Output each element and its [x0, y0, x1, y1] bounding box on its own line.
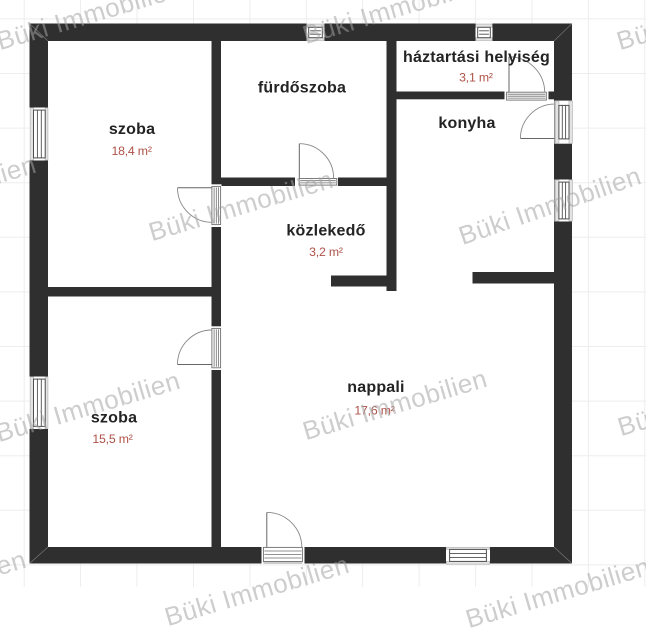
svg-text:18,4 m²: 18,4 m²	[111, 144, 151, 158]
svg-text:3,1 m²: 3,1 m²	[459, 71, 493, 85]
svg-text:szoba: szoba	[109, 121, 155, 138]
svg-text:15,5 m²: 15,5 m²	[92, 432, 132, 446]
svg-text:közlekedő: közlekedő	[286, 223, 365, 240]
svg-text:3,2 m²: 3,2 m²	[309, 245, 343, 259]
svg-text:konyha: konyha	[438, 115, 495, 132]
svg-text:háztartási helyiség: háztartási helyiség	[403, 49, 550, 66]
svg-text:fürdőszoba: fürdőszoba	[258, 79, 346, 96]
